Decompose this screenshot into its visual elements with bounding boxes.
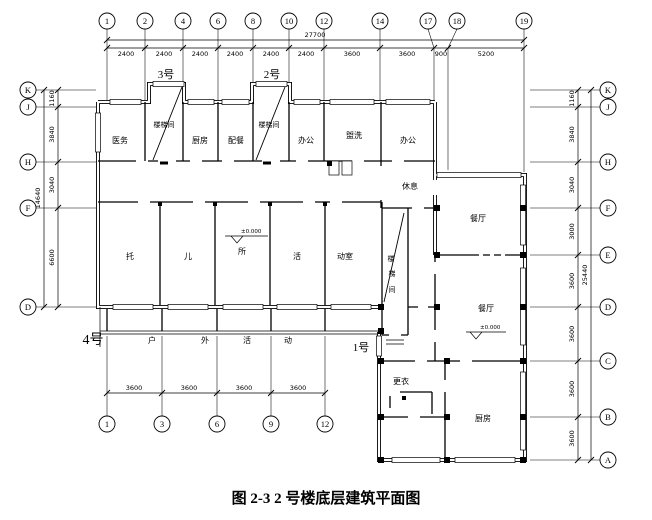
grid-bubble-top-17: 17 xyxy=(424,16,433,26)
dim-right-3: 3000 xyxy=(568,223,576,240)
room-label-stairwell-1-char2: 间 xyxy=(389,286,396,294)
dim-left-3: 6600 xyxy=(48,249,56,266)
dim-top-9: 5200 xyxy=(478,50,495,58)
grid-bubble-bottom-6: 6 xyxy=(215,419,219,429)
grid-bubble-left-K: K xyxy=(25,85,32,95)
dim-right-total: 25440 xyxy=(581,265,589,286)
grid-bubble-top-2: 2 xyxy=(143,16,147,26)
grid-bubble-top-6: 6 xyxy=(216,16,220,26)
unit-labels: 3号 2号 4号 1号 xyxy=(83,68,370,354)
grid-bubble-top-12: 12 xyxy=(320,16,329,26)
grid-bubble-left-D: D xyxy=(25,302,31,312)
dim-top-8: 900 xyxy=(435,50,447,58)
floor-plan-figure: 27700 2400 2400 2400 2400 2400 2400 3600… xyxy=(0,0,652,520)
outdoor-char-huo: 活 xyxy=(243,335,251,345)
room-label-huo: 活 xyxy=(293,251,301,261)
figure-caption: 图 2-3 2 号楼底层建筑平面图 xyxy=(232,489,421,507)
room-label-office-b: 办公 xyxy=(400,135,416,145)
grid-bubble-right-E: E xyxy=(605,250,610,260)
dim-top-6: 3600 xyxy=(344,50,361,58)
grid-bubble-top-8: 8 xyxy=(251,16,255,26)
unit-label-2: 2号 xyxy=(264,68,281,81)
dim-left-1: 3840 xyxy=(48,126,56,143)
level-markers: ±0.000 ±0.000 xyxy=(225,229,506,339)
dim-top-7: 3600 xyxy=(399,50,416,58)
dim-top-5: 2400 xyxy=(298,50,315,58)
dim-top-total: 27700 xyxy=(305,31,326,39)
level-label-main: ±0.000 xyxy=(241,229,262,235)
unit-label-1: 1号 xyxy=(353,341,370,354)
room-label-tuo: 托 xyxy=(126,251,134,261)
grid-bubble-bottom-3: 3 xyxy=(160,419,164,429)
room-label-dining-upper: 餐厅 xyxy=(470,214,486,223)
extension-lines xyxy=(36,29,600,460)
outdoor-char-dong: 动 xyxy=(284,335,292,345)
grid-bubble-right-D: D xyxy=(605,302,611,312)
grid-bubble-top-18: 18 xyxy=(453,16,462,26)
grid-bubble-right-K: K xyxy=(605,85,612,95)
dim-bottom-2: 3600 xyxy=(236,384,253,392)
grid-bubble-bottom-9: 9 xyxy=(269,419,273,429)
dim-top-2: 2400 xyxy=(192,50,209,58)
grid-bubble-right-F: F xyxy=(606,203,611,213)
outdoor-activity-labels: 户 外 活 动 xyxy=(148,335,292,345)
dim-right-4: 3600 xyxy=(568,273,576,290)
dim-bottom-1: 3600 xyxy=(181,384,198,392)
grid-bubble-top-14: 14 xyxy=(376,16,385,26)
room-label-rest: 休息 xyxy=(402,181,418,191)
grid-bubble-top-1: 1 xyxy=(105,16,109,26)
dimension-labels: 27700 2400 2400 2400 2400 2400 2400 3600… xyxy=(34,31,589,447)
dim-left-2: 3040 xyxy=(48,177,56,194)
grid-bubble-bottom-12: 12 xyxy=(321,419,330,429)
unit-label-4: 4号 xyxy=(83,333,104,348)
room-label-stairwell-1-char1: 梯 xyxy=(389,269,396,278)
stair-runs xyxy=(153,87,404,302)
unit-label-3: 3号 xyxy=(158,68,175,81)
grid-bubble-top-10: 10 xyxy=(285,16,294,26)
dim-right-5: 3600 xyxy=(568,326,576,343)
dim-bottom-3: 3600 xyxy=(290,384,307,392)
dim-top-3: 2400 xyxy=(227,50,244,58)
dim-bottom-0: 3600 xyxy=(126,384,143,392)
room-label-er: 儿 xyxy=(184,252,192,261)
room-label-office-a: 办公 xyxy=(298,135,314,145)
floor-plan-drawing: 27700 2400 2400 2400 2400 2400 2400 3600… xyxy=(0,0,652,520)
room-label-suo: 所 xyxy=(238,246,246,256)
dim-top-0: 2400 xyxy=(118,50,135,58)
outdoor-char-hu: 户 xyxy=(148,335,156,345)
grid-bubble-left-H: H xyxy=(25,157,31,167)
dim-right-2: 3040 xyxy=(568,177,576,194)
room-label-kitchen-top: 厨房 xyxy=(192,135,208,145)
dim-right-1: 3840 xyxy=(568,126,576,143)
room-label-changing: 更衣 xyxy=(393,376,409,386)
dim-left-0: 1160 xyxy=(48,90,56,107)
grid-bubble-right-C: C xyxy=(605,356,611,366)
room-label-stairwell-2: 楼梯间 xyxy=(259,120,280,129)
terrace-canopy xyxy=(100,307,378,347)
room-label-dongshi: 动室 xyxy=(337,251,353,261)
room-label-dining-lower: 餐厅 xyxy=(478,304,494,313)
grid-bubble-bottom-1: 1 xyxy=(105,419,109,429)
dim-right-6: 3600 xyxy=(568,381,576,398)
room-label-pantry: 配餐 xyxy=(228,136,244,145)
outdoor-char-wai: 外 xyxy=(201,335,209,345)
dim-top-1: 2400 xyxy=(156,50,173,58)
grid-bubble-left-F: F xyxy=(26,203,31,213)
grid-bubble-right-B: B xyxy=(605,412,611,422)
dim-right-0: 1160 xyxy=(568,90,576,107)
level-label-wing: ±0.000 xyxy=(480,325,501,331)
room-label-medical: 医务 xyxy=(112,135,128,145)
room-label-stairwell-1-char0: 楼 xyxy=(388,254,395,263)
grid-bubble-top-19: 19 xyxy=(520,16,529,26)
grid-bubble-right-H: H xyxy=(605,157,611,167)
grid-bubble-right-A: A xyxy=(605,455,612,465)
dim-right-7: 3600 xyxy=(568,430,576,447)
room-label-washroom: 盥洗 xyxy=(346,130,362,140)
room-label-stairwell-3: 楼梯间 xyxy=(154,120,175,129)
dim-top-4: 2400 xyxy=(263,50,280,58)
room-label-kitchen-br: 厨房 xyxy=(475,413,491,423)
